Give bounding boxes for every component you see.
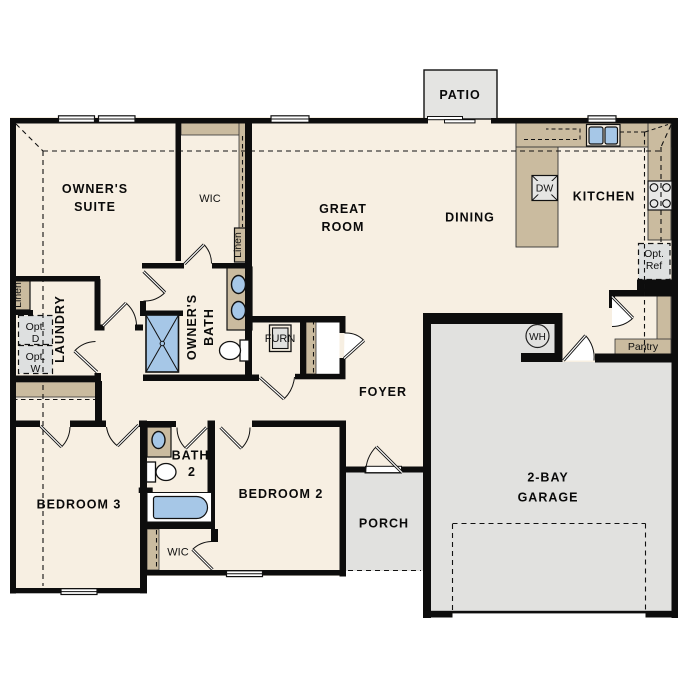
svg-text:GARAGE: GARAGE <box>518 491 579 505</box>
svg-text:FURN: FURN <box>265 333 296 345</box>
svg-text:W: W <box>31 363 41 375</box>
svg-text:2: 2 <box>188 465 196 479</box>
svg-text:Opt.: Opt. <box>644 248 664 260</box>
svg-text:Pantry: Pantry <box>628 341 659 353</box>
svg-text:ROOM: ROOM <box>322 220 365 234</box>
svg-text:BATH: BATH <box>202 308 216 346</box>
svg-text:Linen: Linen <box>232 232 244 258</box>
svg-text:SUITE: SUITE <box>74 200 116 214</box>
svg-text:Ref: Ref <box>646 260 662 272</box>
svg-text:BEDROOM 3: BEDROOM 3 <box>37 498 122 512</box>
svg-text:2-BAY: 2-BAY <box>527 471 568 485</box>
svg-text:D: D <box>32 333 40 345</box>
svg-text:LAUNDRY: LAUNDRY <box>53 295 67 363</box>
svg-text:OWNER'S: OWNER'S <box>62 182 128 196</box>
svg-text:GREAT: GREAT <box>319 202 367 216</box>
svg-text:FOYER: FOYER <box>359 385 407 399</box>
svg-text:PATIO: PATIO <box>439 88 480 102</box>
svg-text:KITCHEN: KITCHEN <box>573 190 636 204</box>
svg-text:DW: DW <box>536 183 554 195</box>
svg-text:Opt.: Opt. <box>26 321 46 333</box>
svg-text:OWNER'S: OWNER'S <box>185 294 199 360</box>
svg-text:BEDROOM 2: BEDROOM 2 <box>239 487 324 501</box>
svg-text:BATH: BATH <box>172 449 210 463</box>
svg-text:WH: WH <box>529 332 546 343</box>
svg-text:PORCH: PORCH <box>359 517 409 531</box>
svg-text:DINING: DINING <box>445 211 495 225</box>
svg-text:WIC: WIC <box>167 547 188 559</box>
svg-text:Linen: Linen <box>12 282 24 308</box>
svg-text:WIC: WIC <box>199 193 220 205</box>
svg-text:Opt.: Opt. <box>26 351 46 363</box>
